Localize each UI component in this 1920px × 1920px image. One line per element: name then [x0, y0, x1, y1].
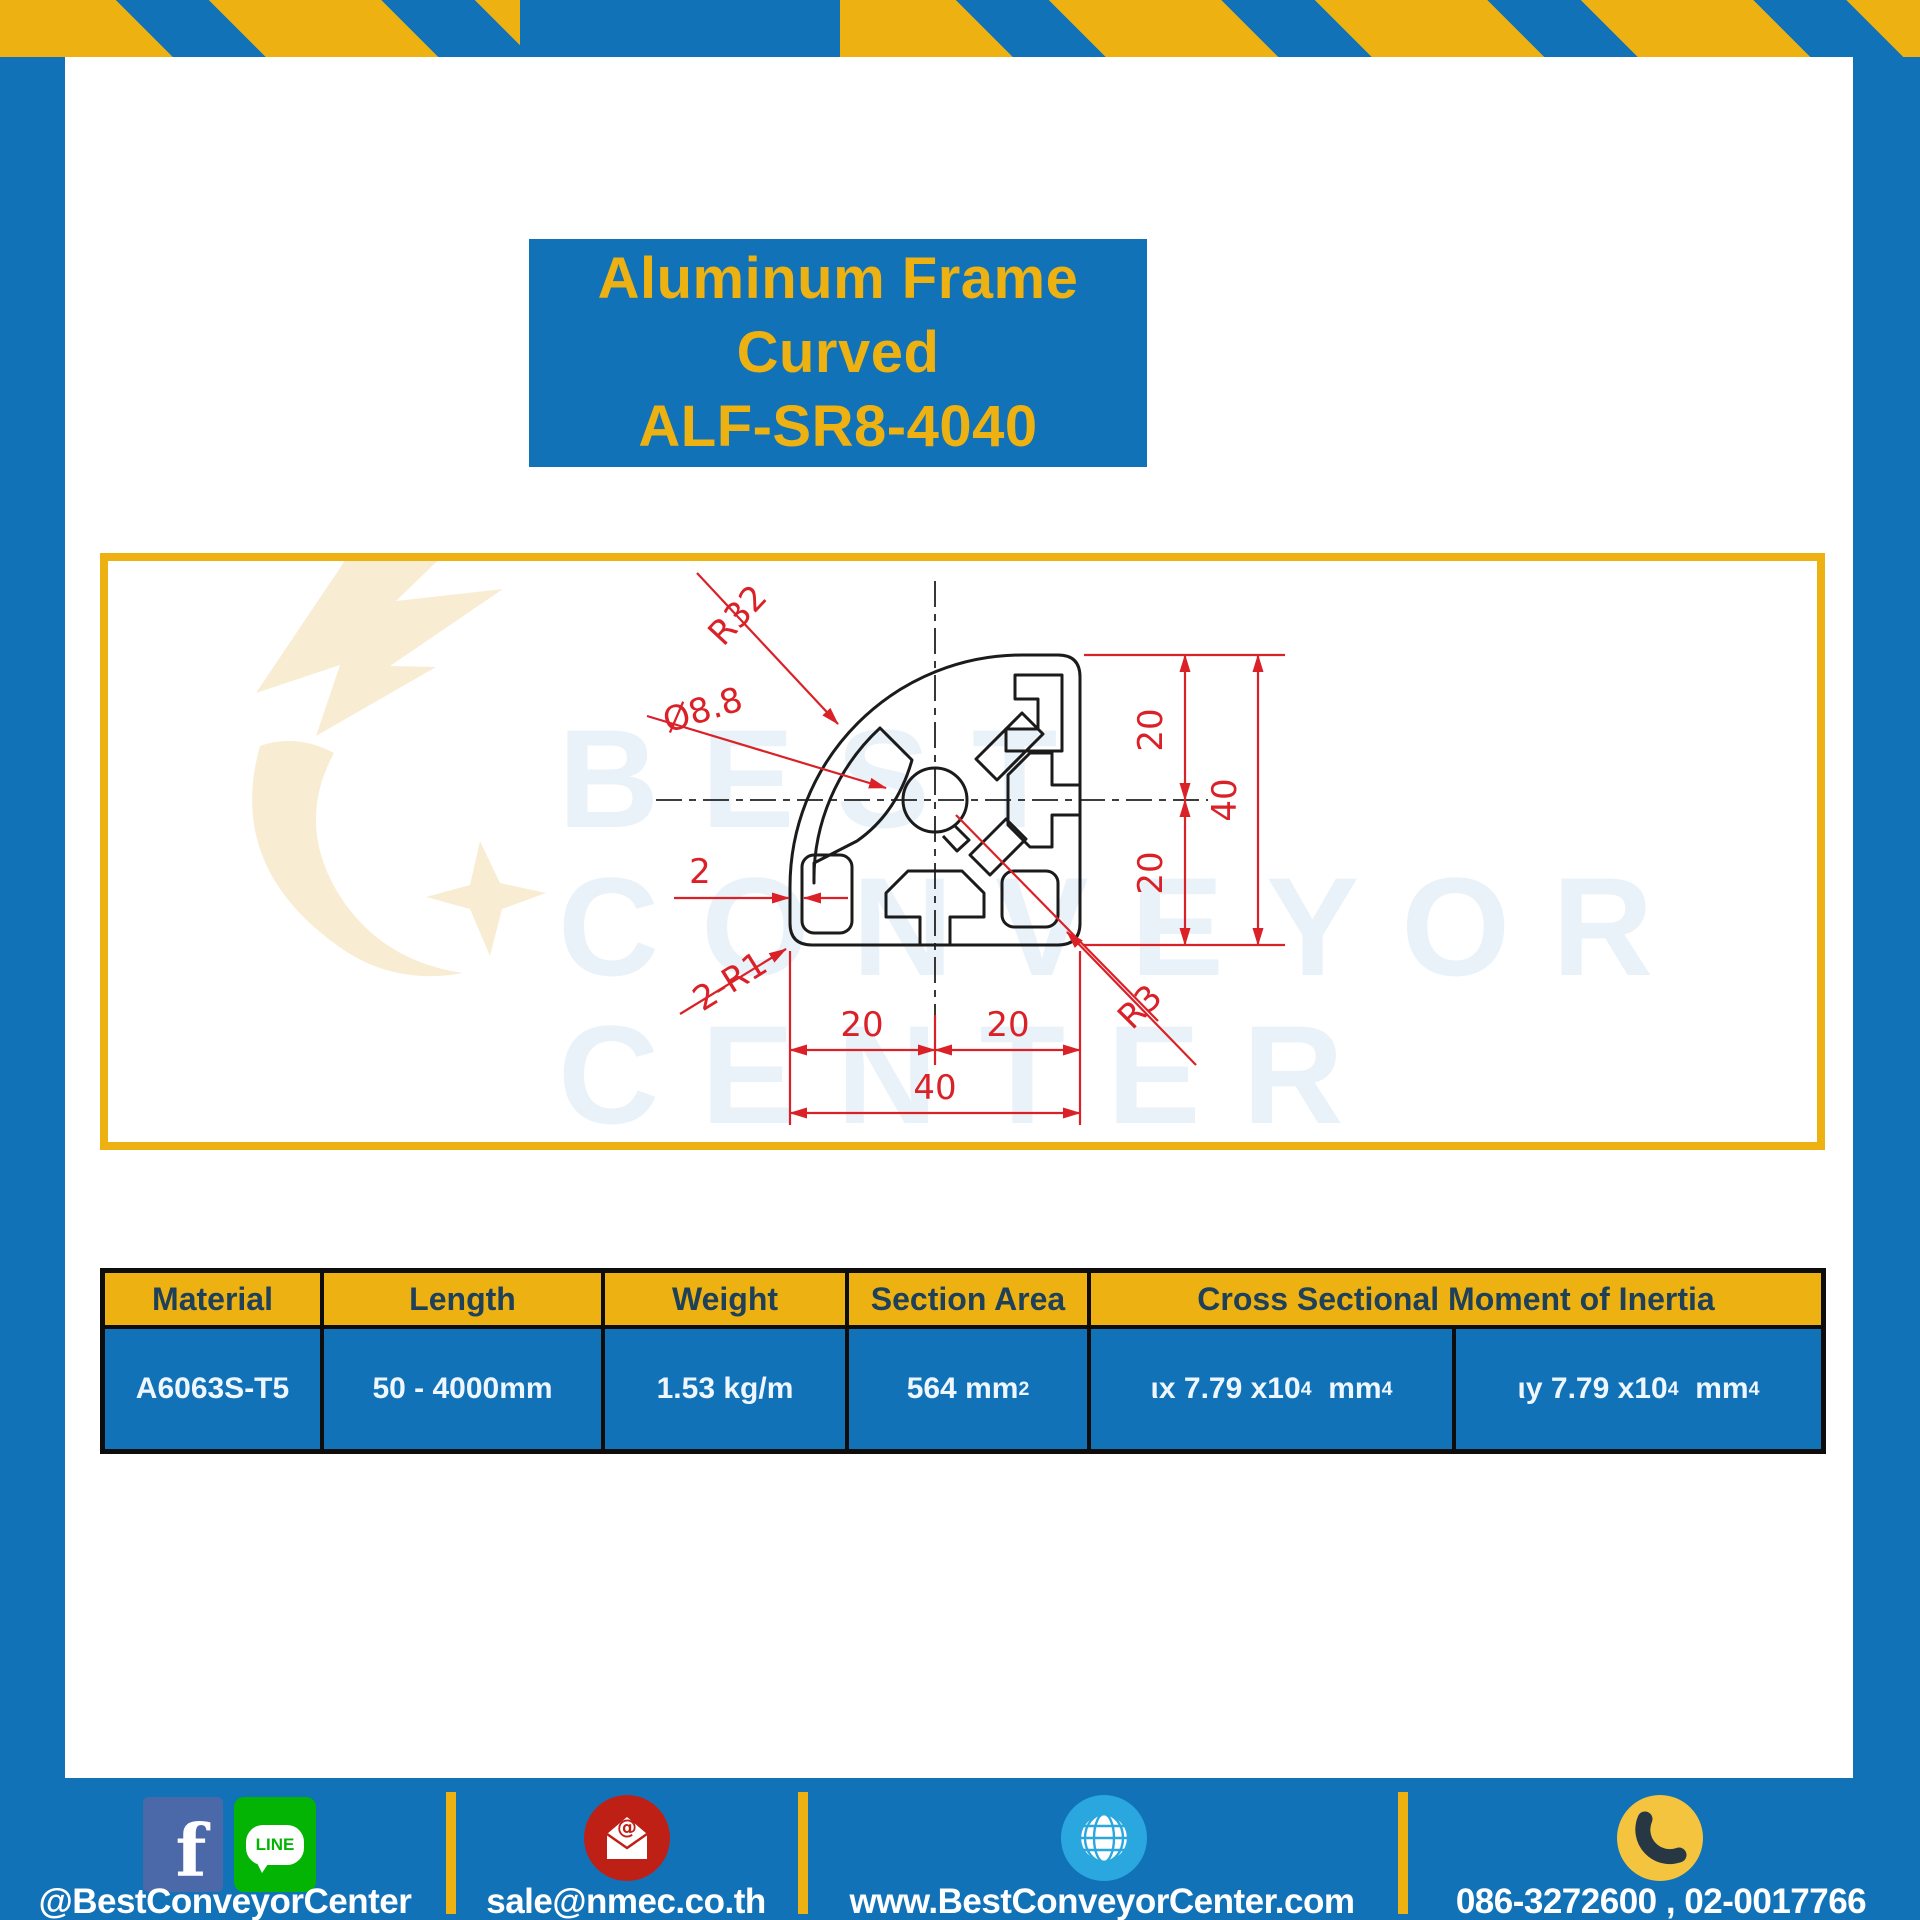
hazard-stripes-left	[0, 0, 520, 57]
dim-label-wall: 2	[689, 852, 711, 892]
value-material: A6063S-T5	[105, 1329, 324, 1449]
cad-cross-section: R32 Ø8.8 2 2-R1 20 20 40 20 20 40 R3	[100, 553, 1825, 1150]
header-inertia: Cross Sectional Moment of Inertia	[1091, 1273, 1821, 1329]
value-length: 50 - 4000mm	[324, 1329, 605, 1449]
svg-text:@: @	[617, 1815, 637, 1839]
value-weight: 1.53 kg/m	[605, 1329, 849, 1449]
header-weight: Weight	[605, 1273, 849, 1329]
value-inertia-x: ιx 7.79 x104 mm4	[1091, 1329, 1456, 1449]
line-app-icon[interactable]: LINE	[234, 1797, 316, 1892]
spec-table-data-row: A6063S-T5 50 - 4000mm 1.53 kg/m 564 mm2 …	[105, 1329, 1821, 1449]
lower-left-cavity	[802, 855, 852, 933]
dim-label-right-20a: 20	[1131, 708, 1171, 751]
spec-table: Material Length Weight Section Area Cros…	[100, 1268, 1826, 1454]
corner-cavity	[1002, 871, 1058, 927]
social-handle[interactable]: @BestConveyorCenter	[0, 1882, 450, 1920]
website-url[interactable]: www.BestConveyorCenter.com	[802, 1882, 1402, 1920]
spec-table-header-row: Material Length Weight Section Area Cros…	[105, 1273, 1821, 1329]
phone-icon[interactable]	[1617, 1795, 1703, 1881]
product-type: Curved	[737, 316, 940, 390]
value-section-area: 564 mm2	[849, 1329, 1091, 1449]
dim-label-bottom-20b: 20	[986, 1005, 1029, 1045]
email-icon[interactable]: @	[584, 1795, 670, 1881]
email-address[interactable]: sale@nmec.co.th	[450, 1882, 802, 1920]
top-channel-cavity	[976, 713, 1043, 780]
lower-spoke-cavity	[970, 819, 1026, 875]
phone-numbers[interactable]: 086-3272600 , 02-0017766	[1402, 1882, 1920, 1920]
dim-label-right-40: 40	[1205, 778, 1245, 821]
upper-right-cavity	[1006, 675, 1062, 751]
globe-icon[interactable]	[1061, 1795, 1147, 1881]
header-section-area: Section Area	[849, 1273, 1091, 1329]
product-code: ALF-SR8-4040	[638, 390, 1037, 464]
dim-label-bottom-20a: 20	[840, 1005, 883, 1045]
facebook-icon[interactable]: f	[143, 1797, 223, 1892]
header-length: Length	[324, 1273, 605, 1329]
product-title-box: Aluminum Frame Curved ALF-SR8-4040	[529, 239, 1147, 467]
header-material: Material	[105, 1273, 324, 1329]
product-category: Aluminum Frame	[598, 242, 1079, 316]
dimension-lines	[647, 573, 1285, 1125]
hazard-stripes-right	[840, 0, 1920, 57]
flyer-page: Aluminum Frame Curved ALF-SR8-4040 BEST …	[0, 0, 1920, 1920]
left-wing-cavity	[814, 728, 912, 883]
dim-label-right-20b: 20	[1131, 851, 1171, 894]
line-bubble-tail	[256, 1861, 270, 1873]
dim-label-bottom-40: 40	[913, 1068, 956, 1108]
line-speech-bubble: LINE	[246, 1825, 304, 1865]
value-inertia-y: ιy 7.79 x104 mm4	[1456, 1329, 1821, 1449]
dim-label-fillet: 2-R1	[686, 944, 774, 1020]
